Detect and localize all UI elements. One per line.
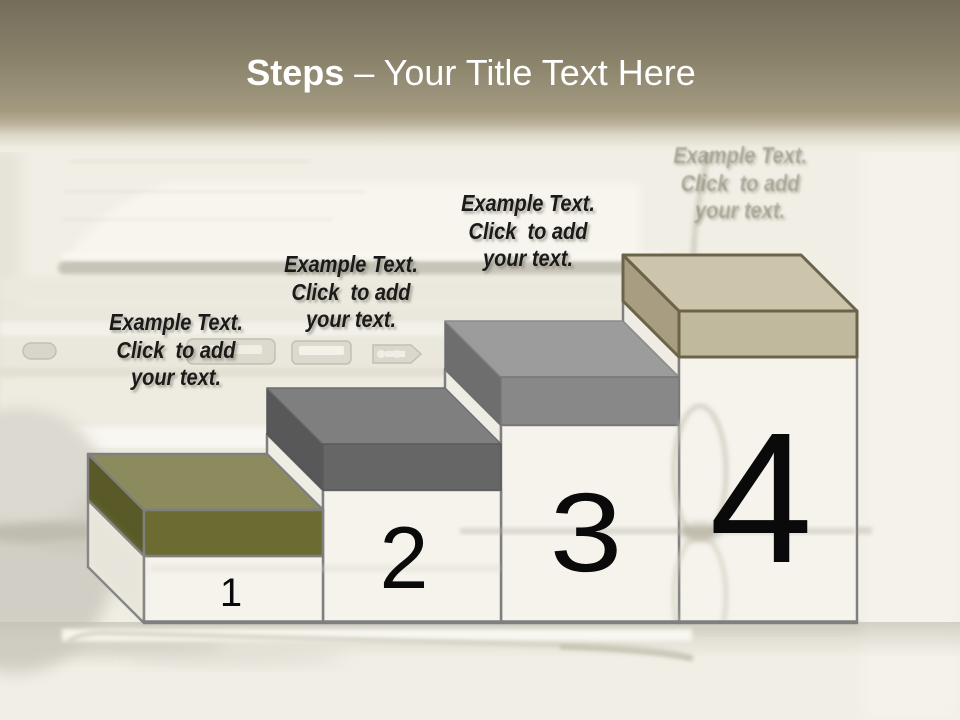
svg-text:2: 2 — [380, 508, 429, 607]
svg-text:1: 1 — [220, 571, 242, 615]
svg-text:4: 4 — [709, 395, 812, 602]
svg-text:3: 3 — [550, 470, 623, 595]
